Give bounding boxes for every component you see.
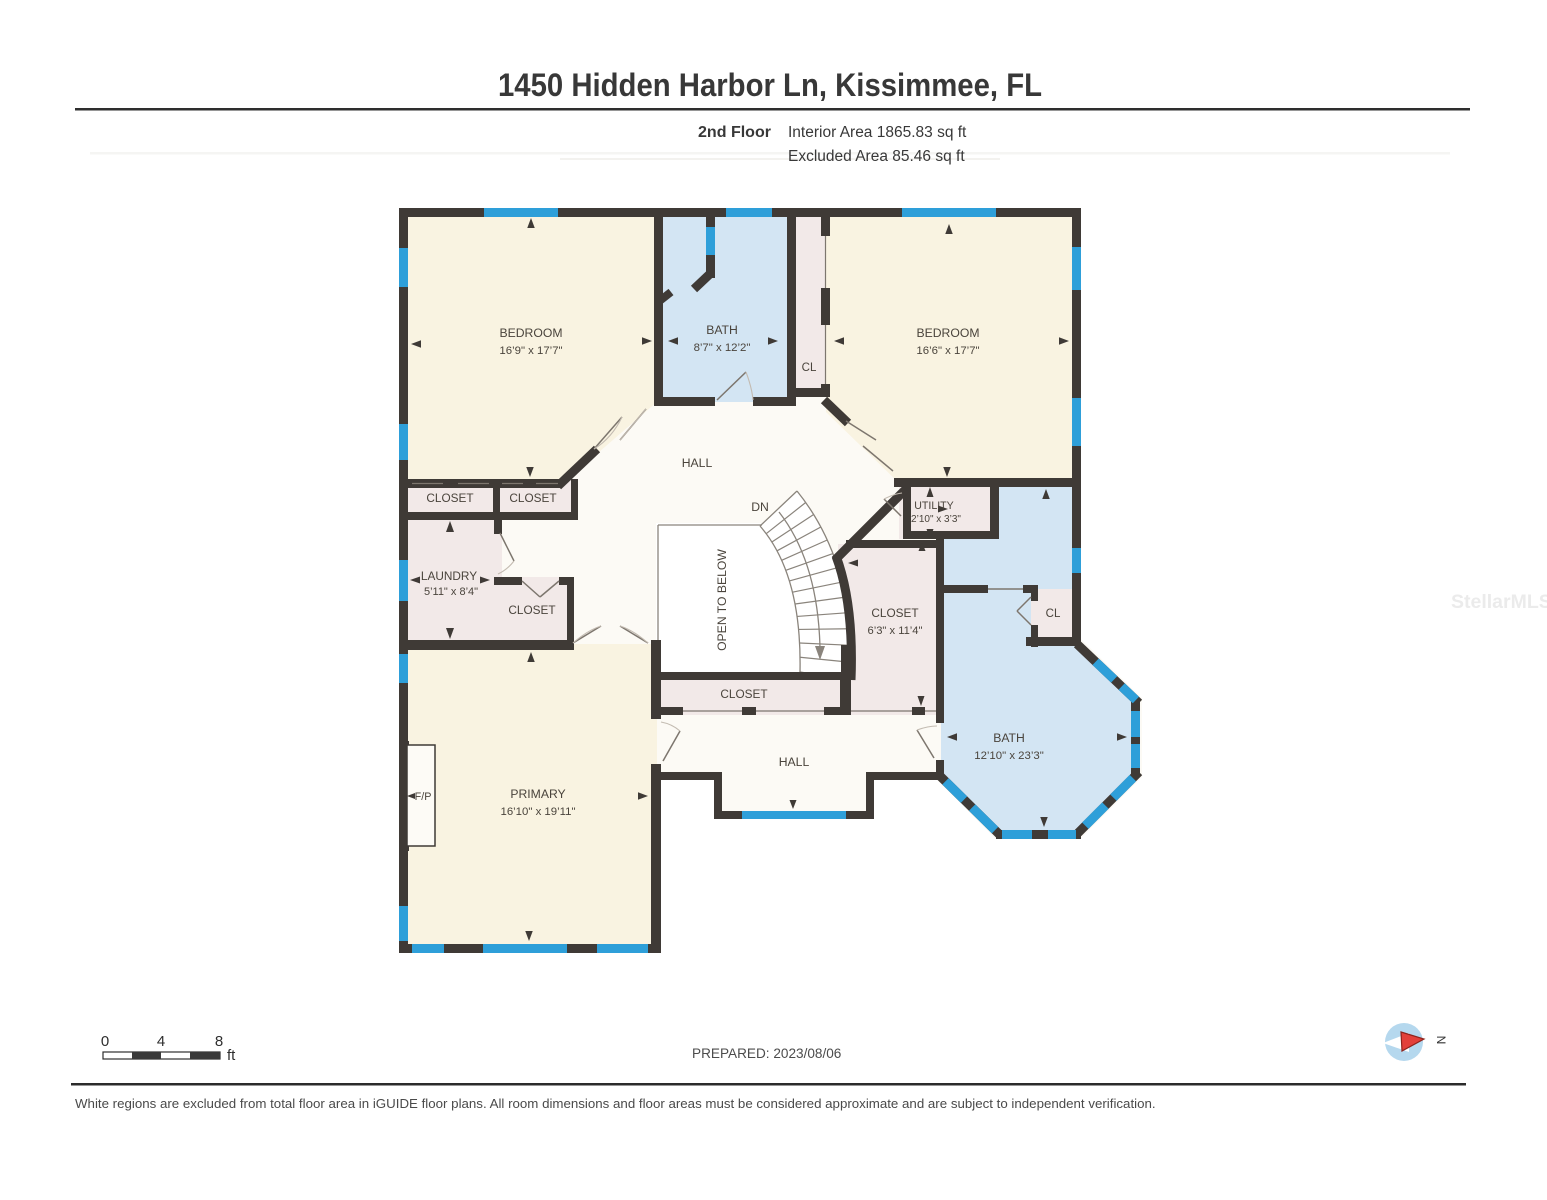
svg-text:0: 0 [101, 1033, 109, 1050]
svg-text:Interior Area 1865.83 sq ft: Interior Area 1865.83 sq ft [788, 124, 967, 141]
svg-text:HALL: HALL [682, 456, 713, 470]
svg-text:CLOSET: CLOSET [720, 687, 767, 701]
svg-text:BATH: BATH [706, 323, 738, 337]
svg-text:16’10" x 19’11": 16’10" x 19’11" [500, 806, 575, 818]
svg-text:CL: CL [802, 362, 817, 374]
svg-text:BEDROOM: BEDROOM [500, 326, 563, 340]
svg-text:LAUNDRY: LAUNDRY [421, 569, 477, 583]
svg-text:8: 8 [215, 1033, 223, 1050]
svg-text:OPEN TO BELOW: OPEN TO BELOW [715, 549, 729, 651]
svg-text:2nd Floor: 2nd Floor [698, 124, 771, 141]
svg-text:Excluded Area 85.46 sq ft: Excluded Area 85.46 sq ft [788, 148, 965, 165]
svg-text:16’9" x 17’7": 16’9" x 17’7" [499, 345, 562, 357]
svg-text:12’10" x 23’3": 12’10" x 23’3" [974, 750, 1044, 762]
svg-text:2’10" x 3’3": 2’10" x 3’3" [911, 514, 961, 525]
svg-text:CLOSET: CLOSET [871, 606, 918, 620]
svg-text:8’7" x 12’2": 8’7" x 12’2" [694, 342, 751, 354]
svg-text:CLOSET: CLOSET [426, 491, 473, 505]
svg-text:F/P: F/P [415, 791, 432, 803]
svg-text:CLOSET: CLOSET [509, 491, 556, 505]
svg-text:1450 Hidden Harbor Ln, Kissimm: 1450 Hidden Harbor Ln, Kissimmee, FL [498, 67, 1042, 103]
svg-text:5’11" x 8’4": 5’11" x 8’4" [424, 586, 478, 598]
svg-text:DN: DN [751, 500, 769, 514]
svg-text:UTILITY: UTILITY [914, 500, 953, 512]
svg-text:PREPARED: 2023/08/06: PREPARED: 2023/08/06 [692, 1046, 841, 1061]
svg-text:N: N [1434, 1036, 1448, 1045]
svg-text:16’6" x 17’7": 16’6" x 17’7" [916, 345, 979, 357]
svg-text:CL: CL [1046, 608, 1061, 620]
svg-text:6’3" x 11’4": 6’3" x 11’4" [867, 625, 922, 637]
svg-text:CLOSET: CLOSET [508, 603, 555, 617]
svg-text:4: 4 [157, 1033, 165, 1050]
svg-text:BATH: BATH [993, 731, 1025, 745]
svg-text:ft: ft [227, 1047, 236, 1064]
svg-text:HALL: HALL [779, 755, 810, 769]
svg-text:PRIMARY: PRIMARY [510, 787, 565, 801]
svg-text:White regions are excluded fro: White regions are excluded from total fl… [75, 1096, 1156, 1111]
svg-text:StellarMLS: StellarMLS [1451, 591, 1547, 613]
svg-text:BEDROOM: BEDROOM [917, 326, 980, 340]
